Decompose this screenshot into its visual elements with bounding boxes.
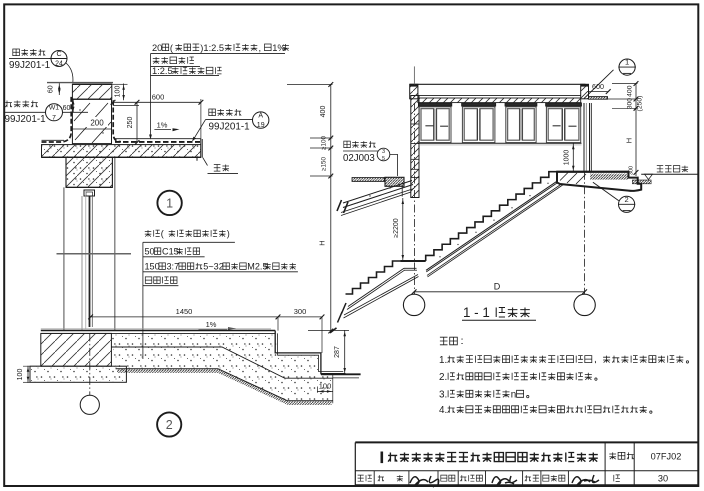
svg-text:≥150: ≥150 — [321, 157, 328, 171]
svg-text:24: 24 — [55, 60, 63, 67]
svg-text:1 - 1: 1 - 1 — [463, 305, 490, 320]
svg-text:600: 600 — [592, 82, 604, 91]
svg-text:400: 400 — [320, 106, 327, 118]
svg-text:)1:2.5: )1:2.5 — [200, 43, 224, 53]
svg-text:M2.5: M2.5 — [247, 262, 267, 272]
svg-text:1000: 1000 — [563, 150, 570, 166]
svg-text:3:7: 3:7 — [167, 262, 180, 272]
svg-text:2: 2 — [625, 195, 629, 204]
svg-text:150: 150 — [145, 262, 160, 272]
svg-text:07FJ02: 07FJ02 — [651, 451, 682, 461]
svg-text:4.: 4. — [439, 405, 447, 416]
svg-text:≥2200: ≥2200 — [393, 218, 400, 238]
svg-text:1450: 1450 — [176, 307, 193, 316]
svg-text:2.: 2. — [439, 372, 447, 383]
svg-text:1%: 1% — [206, 320, 217, 329]
svg-text:C: C — [56, 51, 61, 58]
svg-text:5: 5 — [382, 156, 385, 162]
svg-text:20: 20 — [152, 43, 162, 53]
svg-text:n: n — [511, 390, 517, 401]
svg-text:50: 50 — [145, 247, 155, 257]
svg-text:30: 30 — [658, 474, 668, 484]
svg-text:250: 250 — [127, 117, 134, 129]
svg-text:,: , — [259, 43, 262, 53]
svg-text:A: A — [258, 112, 263, 119]
svg-text:W1: W1 — [49, 105, 59, 112]
svg-text:60: 60 — [63, 105, 71, 112]
svg-text:60: 60 — [48, 85, 55, 93]
svg-text:C15: C15 — [162, 247, 179, 257]
svg-text:100: 100 — [319, 381, 332, 390]
svg-text:200: 200 — [90, 119, 104, 128]
svg-text:100: 100 — [17, 369, 24, 381]
svg-text:99J201-1: 99J201-1 — [209, 121, 251, 132]
svg-text:H: H — [625, 138, 634, 143]
svg-text:19: 19 — [257, 122, 265, 129]
svg-text:(250): (250) — [637, 96, 644, 112]
svg-text:≥100: ≥100 — [321, 136, 328, 150]
svg-text:287: 287 — [334, 346, 341, 358]
svg-text:1: 1 — [625, 58, 629, 67]
svg-text:H: H — [318, 240, 327, 245]
svg-text:600: 600 — [152, 92, 165, 101]
svg-text:1:2.5: 1:2.5 — [152, 66, 173, 76]
svg-text:99J201-1: 99J201-1 — [5, 114, 47, 125]
svg-text:): ) — [227, 229, 230, 239]
svg-text:300: 300 — [629, 166, 635, 175]
svg-text:300: 300 — [294, 307, 307, 316]
svg-text:02J003: 02J003 — [343, 153, 375, 164]
svg-text:400: 400 — [627, 85, 634, 97]
svg-text:3: 3 — [382, 149, 385, 155]
svg-text:7: 7 — [52, 114, 56, 121]
svg-text:3.: 3. — [439, 390, 447, 401]
svg-text:5~32: 5~32 — [203, 262, 223, 272]
svg-text:D: D — [494, 282, 501, 292]
svg-text:100: 100 — [115, 86, 122, 98]
svg-text:300: 300 — [627, 98, 634, 110]
svg-text:99J201-1: 99J201-1 — [9, 60, 51, 71]
svg-text:1%: 1% — [272, 43, 285, 53]
svg-text:1.: 1. — [439, 355, 447, 366]
svg-text:(: ( — [161, 229, 164, 239]
svg-text:2: 2 — [166, 418, 173, 432]
svg-text:1: 1 — [166, 197, 173, 211]
svg-text:1%: 1% — [157, 120, 168, 129]
